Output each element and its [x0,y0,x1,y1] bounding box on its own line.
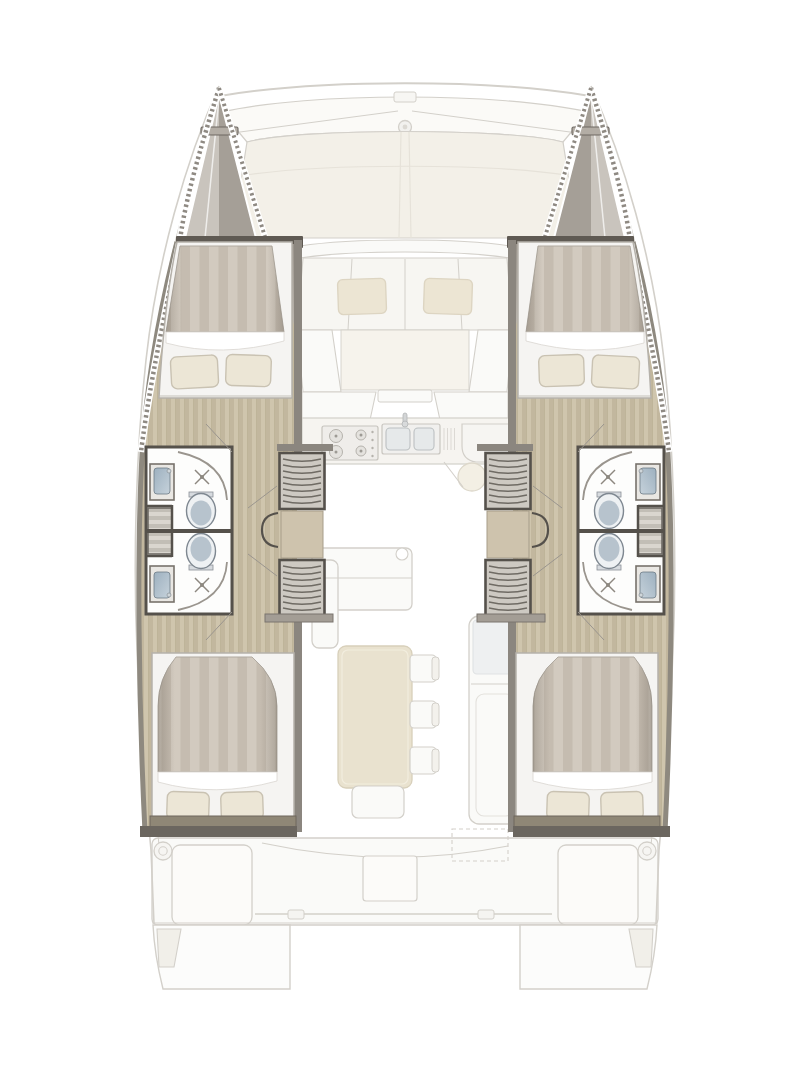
dining-chairs: Dining chairs [410,655,439,774]
pillow [225,354,271,387]
companionway-shelf-aft [265,614,333,622]
toilet [187,534,216,571]
cockpit-cushion [337,278,386,315]
aft-bulkhead [140,826,297,837]
forward-cockpit: Forward cockpit [297,240,513,392]
stairs-aft [280,560,325,616]
saloon-table [338,646,412,788]
catamaran-floorplan: Overhead interior deck plan of a sailing… [0,0,810,1080]
aft-cabin-berth: Aft double cabin [150,653,296,829]
aft-cockpit: Aft cockpit [152,829,658,925]
floorplan-canvas: Overhead interior deck plan of a sailing… [0,0,810,1080]
companionway-landing: Companionway landing [281,511,323,558]
washbasin: Washbasin [150,464,174,500]
cockpit-bench-port [172,845,252,925]
cockpit-bench-starboard [558,845,638,925]
bathrooms: Forward bathroom Washbasin Marine toilet [146,447,232,614]
toilet: Marine toilet [187,492,216,529]
washbasin [150,566,174,602]
cockpit-table [363,856,417,901]
stairs-forward [280,453,325,509]
pillow [170,355,219,389]
bowsprit-fitting [394,92,416,102]
cockpit-cushion [423,278,472,315]
winch: Winch [154,842,172,860]
stove: Stove [322,426,378,460]
foredeck: Foredeck [232,132,578,239]
forward-cabin-berth: Forward double cabin [159,242,292,398]
companionway-shelf-fwd [277,444,333,451]
swim-platform: Swim platform [153,925,290,989]
saloon-bench [352,786,404,818]
